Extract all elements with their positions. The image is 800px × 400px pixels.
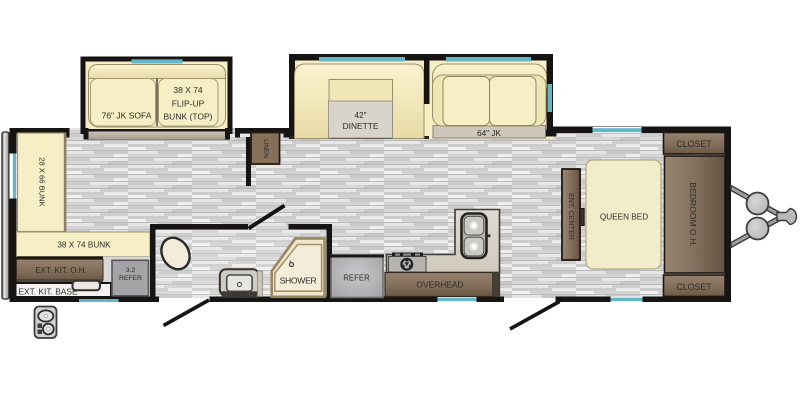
svg-text:ENT. CENTER: ENT. CENTER — [567, 193, 576, 240]
svg-text:FLIP-UP: FLIP-UP — [172, 99, 205, 109]
svg-text:QUEEN BED: QUEEN BED — [600, 213, 648, 222]
svg-text:CLOSET: CLOSET — [676, 282, 712, 292]
svg-text:CLOSET: CLOSET — [676, 139, 712, 149]
svg-text:EXT. KIT. O.H.: EXT. KIT. O.H. — [35, 266, 87, 275]
svg-text:SHOWER: SHOWER — [280, 276, 317, 286]
svg-text:BUNK (TOP): BUNK (TOP) — [164, 112, 213, 122]
svg-text:DINETTE: DINETTE — [343, 121, 379, 131]
svg-text:EXT. KIT. BASE: EXT. KIT. BASE — [18, 286, 78, 296]
svg-text:28 X 66 BUNK: 28 X 66 BUNK — [38, 157, 47, 206]
svg-text:MED: MED — [232, 292, 247, 299]
svg-text:LINEN: LINEN — [262, 139, 269, 158]
svg-text:3.2: 3.2 — [126, 267, 136, 274]
svg-text:REFER: REFER — [343, 274, 370, 283]
svg-text:REFER: REFER — [119, 275, 142, 282]
svg-text:42": 42" — [354, 110, 366, 120]
svg-text:64" JK: 64" JK — [477, 129, 501, 138]
svg-text:76" JK SOFA: 76" JK SOFA — [102, 111, 152, 121]
svg-text:38 X 74: 38 X 74 — [173, 85, 203, 95]
svg-text:OVERHEAD: OVERHEAD — [416, 280, 463, 290]
svg-text:38 X 74 BUNK: 38 X 74 BUNK — [57, 241, 111, 250]
svg-text:BEDROOM O.H.: BEDROOM O.H. — [688, 182, 698, 246]
